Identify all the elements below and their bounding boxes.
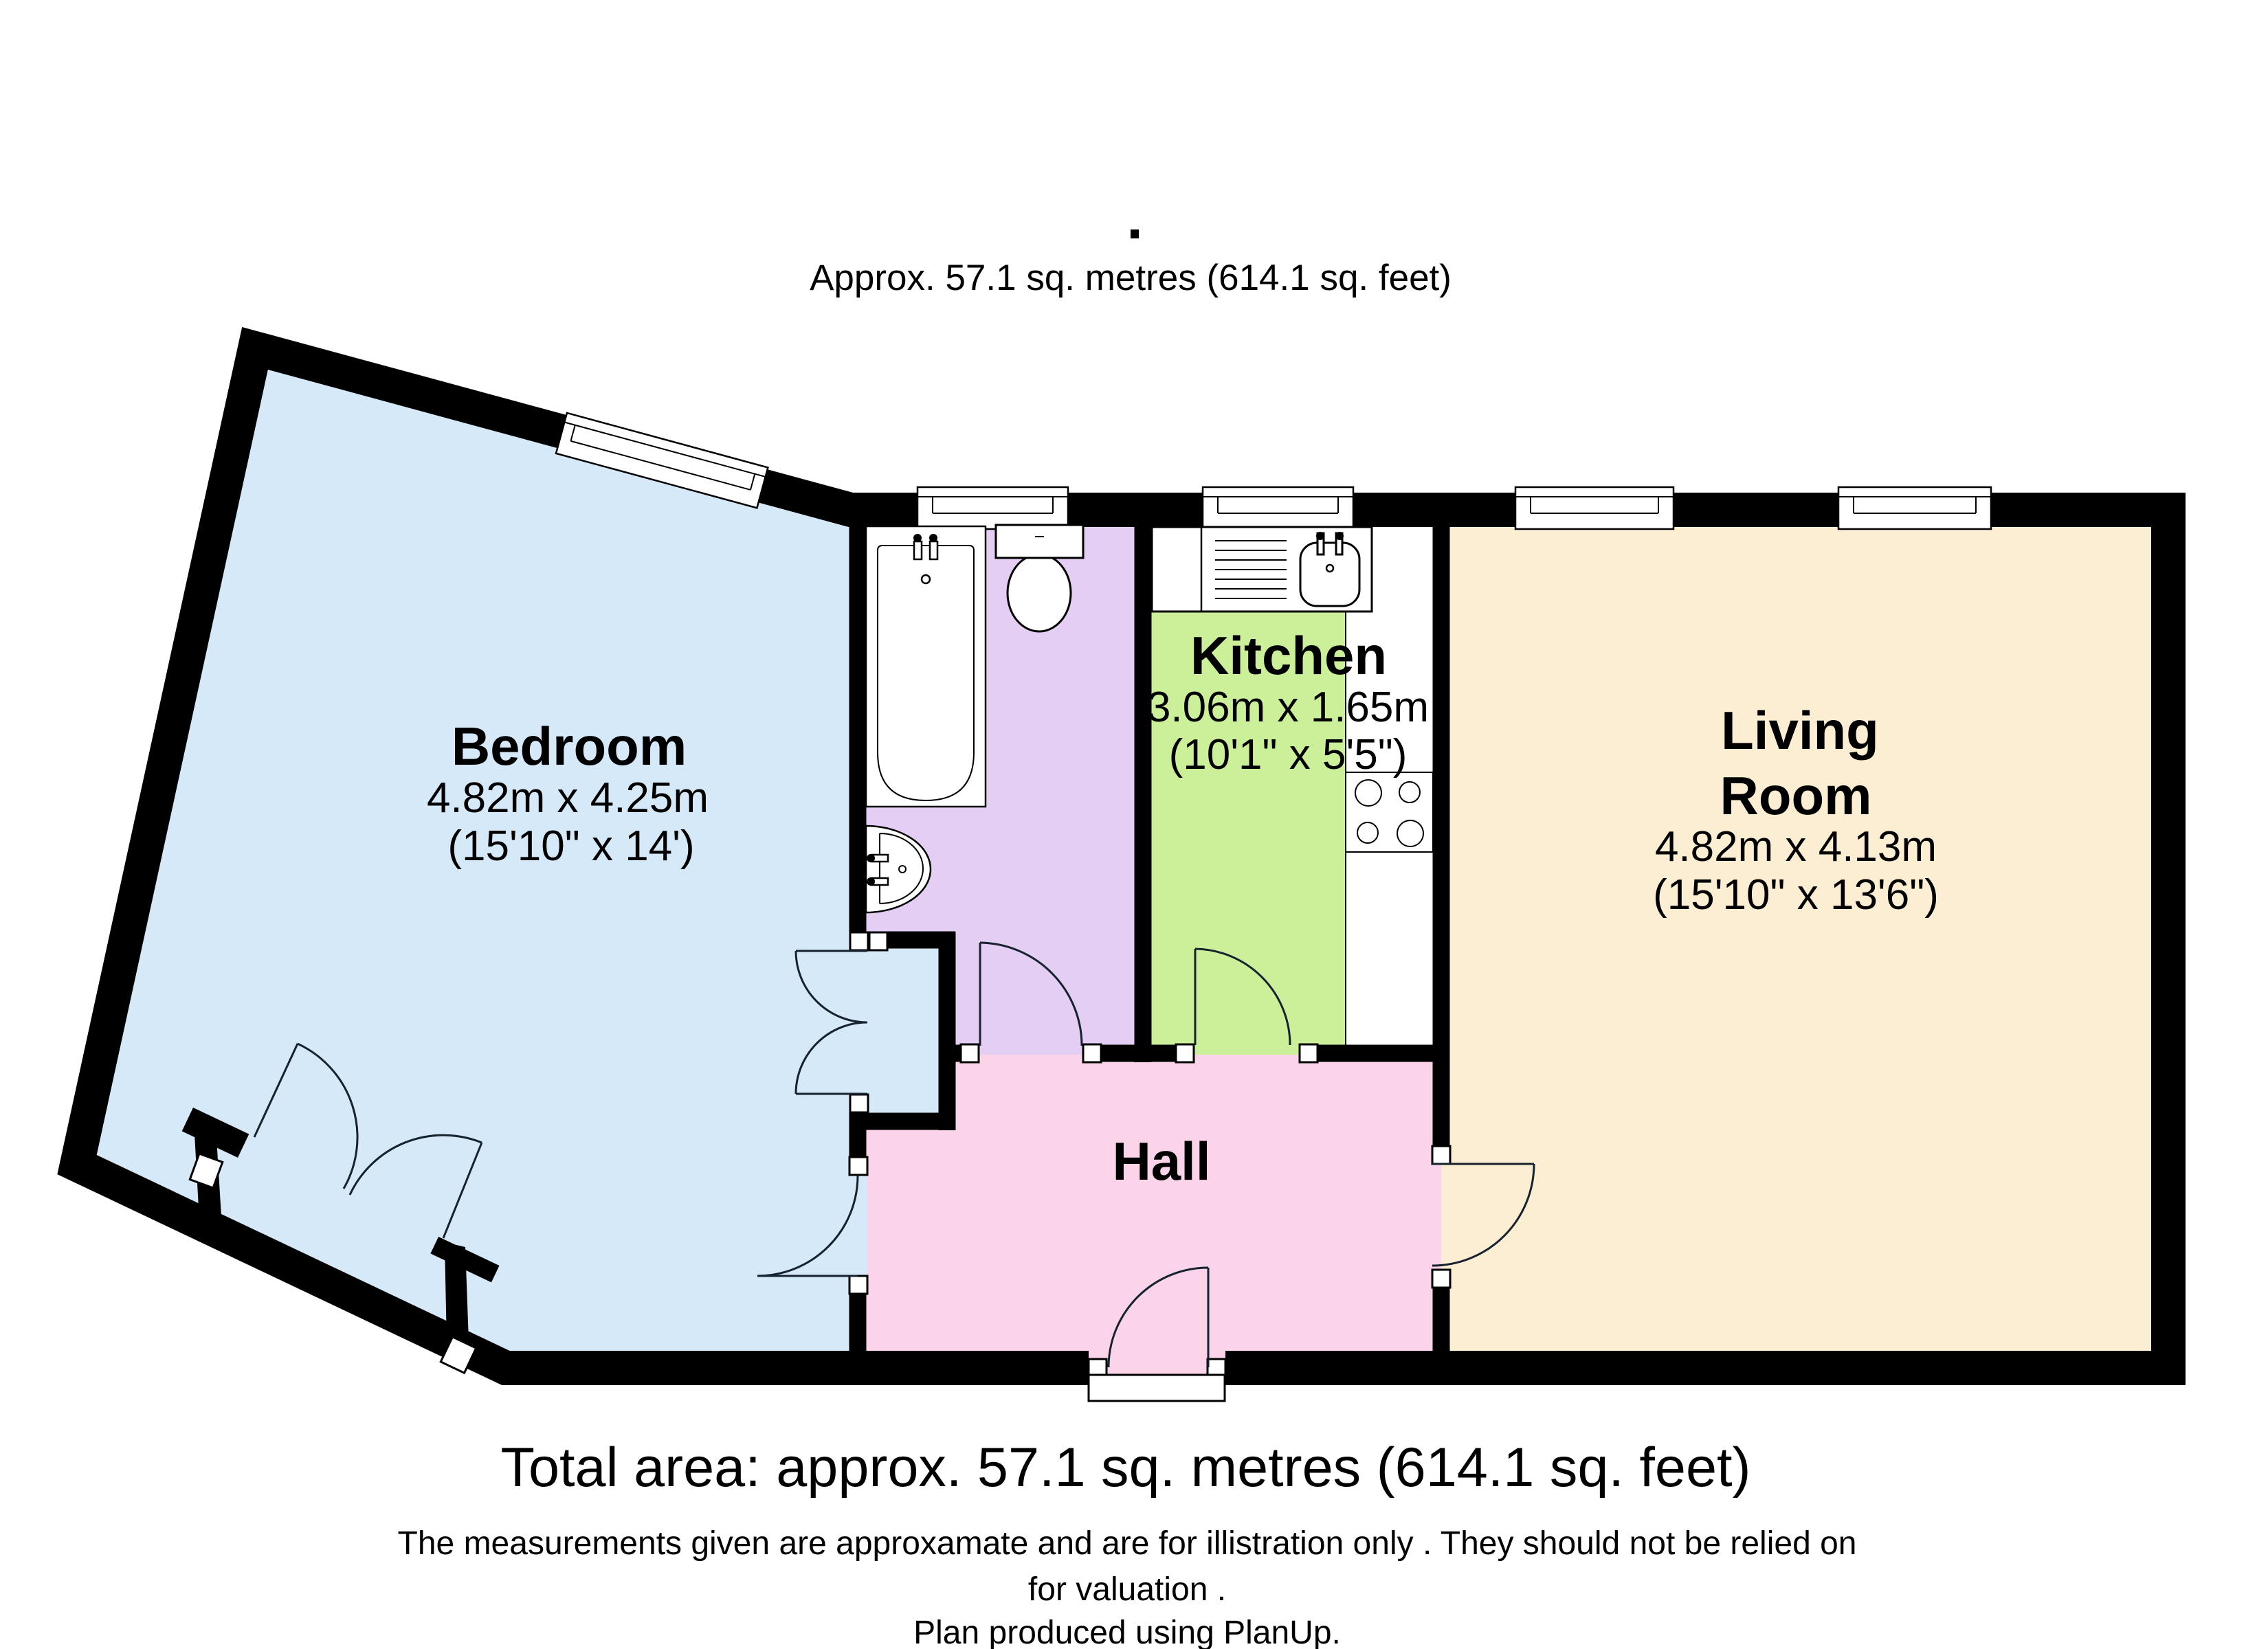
svg-text:for valuation .: for valuation . [1028,1571,1226,1608]
svg-text:4.82m x 4.25m: 4.82m x 4.25m [427,774,709,822]
svg-text:(15'10" x 13'6"): (15'10" x 13'6") [1653,871,1939,919]
svg-text:Kitchen: Kitchen [1190,625,1387,686]
svg-text:Total area: approx. 57.1 sq. m: Total area: approx. 57.1 sq. metres (614… [501,1437,1751,1499]
svg-text:Room: Room [1720,765,1872,826]
svg-text:Plan produced using PlanUp.: Plan produced using PlanUp. [913,1615,1341,1649]
svg-text:(15'10" x 14'): (15'10" x 14') [447,822,694,870]
svg-text:4.82m x 4.13m: 4.82m x 4.13m [1655,823,1937,871]
svg-text:Bedroom: Bedroom [452,716,687,776]
svg-text:Hall: Hall [1112,1131,1210,1191]
svg-text:Living: Living [1721,700,1879,761]
svg-text:(10'1" x 5'5"): (10'1" x 5'5") [1169,731,1408,778]
svg-text:3.06m x 1.65m: 3.06m x 1.65m [1147,684,1429,731]
svg-text:Approx. 57.1 sq. metres (614.1: Approx. 57.1 sq. metres (614.1 sq. feet) [810,258,1452,298]
svg-text:The measurements given are app: The measurements given are approxamate a… [398,1525,1857,1562]
